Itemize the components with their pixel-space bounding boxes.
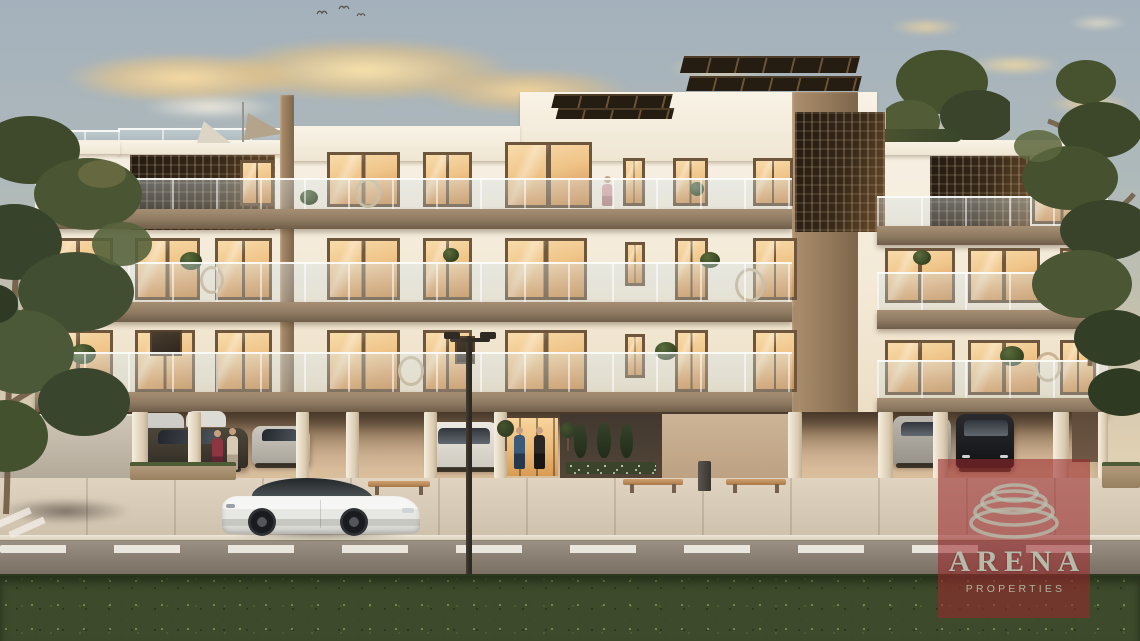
lamp-pole — [466, 336, 472, 576]
architectural-render: ARENA PROPERTIES — [0, 0, 1140, 641]
watermark-subtitle: PROPERTIES — [938, 583, 1090, 595]
arena-logo-icon — [958, 471, 1070, 541]
pine-trees-right — [878, 26, 1140, 430]
pine-tree-left — [0, 104, 176, 514]
lamp-head — [480, 332, 496, 339]
watermark-title: ARENA — [938, 545, 1090, 579]
watermark-panel: ARENA PROPERTIES — [938, 459, 1090, 618]
lamp-head — [444, 332, 460, 339]
